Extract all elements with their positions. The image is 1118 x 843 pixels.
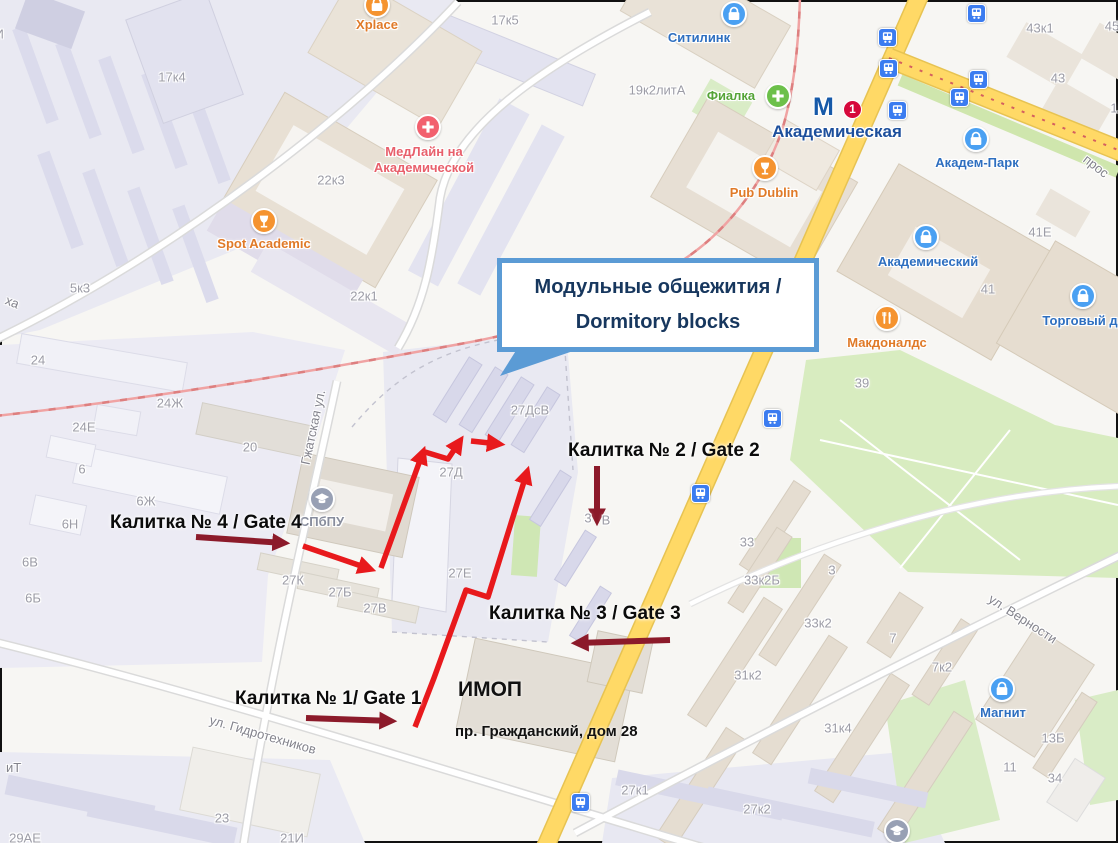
transit-stop-icon[interactable] <box>691 484 710 503</box>
poi-bag-icon[interactable] <box>1070 283 1096 309</box>
bag-glyph <box>915 226 937 248</box>
building-label: 33к2Б <box>744 573 780 588</box>
street-label: ул. Верности <box>986 591 1060 646</box>
building-label: 1 <box>1110 101 1117 116</box>
building-label: 29АЕ <box>9 831 41 843</box>
building-label: 24Е <box>72 420 95 435</box>
building-label: В <box>602 513 611 528</box>
building-label: 20 <box>243 440 257 455</box>
tram-glyph <box>572 794 589 811</box>
poi-grad-icon[interactable] <box>884 818 910 843</box>
building-label: 39 <box>855 376 869 391</box>
bag-glyph <box>723 3 745 25</box>
bag-glyph <box>1072 285 1094 307</box>
building-label: 6Ж <box>136 494 155 509</box>
tram-glyph <box>764 410 781 427</box>
poi-label[interactable]: Ситилинк <box>668 30 730 46</box>
tram-glyph <box>951 89 968 106</box>
cross-glyph <box>417 116 439 138</box>
bag-glyph <box>965 128 987 150</box>
building-label: 27ДсВ <box>511 403 549 418</box>
poi-grad-icon[interactable] <box>309 486 335 512</box>
building-label: 6Б <box>25 591 41 606</box>
street-label: ха <box>3 293 21 312</box>
poi-label[interactable]: МедЛайн наАкадемической <box>374 144 474 176</box>
building-label: 41Е <box>1028 225 1051 240</box>
transit-stop-icon[interactable] <box>888 101 907 120</box>
building-label: 33 <box>740 535 754 550</box>
poi-goblet-icon[interactable] <box>752 155 778 181</box>
bag-glyph <box>366 0 388 16</box>
poi-bag-icon[interactable] <box>989 676 1015 702</box>
goblet-glyph <box>754 157 776 179</box>
building-label: 43 <box>1051 71 1065 86</box>
transit-stop-icon[interactable] <box>950 88 969 107</box>
building-label: 34 <box>1048 771 1062 786</box>
poi-label[interactable]: Академический <box>878 254 978 270</box>
transit-stop-icon[interactable] <box>571 793 590 812</box>
building-label: 23 <box>215 811 229 826</box>
poi-label[interactable]: СПбПУ <box>300 514 344 530</box>
grad-glyph <box>311 488 333 510</box>
poi-label[interactable]: Xplace <box>356 17 398 33</box>
poi-label[interactable]: Макдоналдс <box>847 335 927 351</box>
poi-label[interactable]: Фиалка <box>707 88 755 104</box>
building-label: 27к1 <box>621 783 648 798</box>
poi-cross-icon[interactable] <box>415 114 441 140</box>
map-canvas[interactable]: М 1 Академическая 17И17к417к522к322к15к3… <box>0 0 1118 843</box>
metro-line-badge: 1 <box>843 100 862 119</box>
label-layer: М 1 Академическая 17И17к417к522к322к15к3… <box>0 0 1118 843</box>
dormitory-callout: Модульные общежития / Dormitory blocks <box>497 258 819 352</box>
building-label: 27К <box>282 573 304 588</box>
poi-label[interactable]: Pub Dublin <box>730 185 799 201</box>
bag-glyph <box>991 678 1013 700</box>
building-label: 19к2литА <box>629 83 686 98</box>
building-label: 13Б <box>1042 731 1065 746</box>
transit-stop-icon[interactable] <box>763 409 782 428</box>
building-label: 24Ж <box>157 396 183 411</box>
callout-line-2: Dormitory blocks <box>576 311 740 334</box>
street-label: Гжатская ул. <box>298 388 329 466</box>
callout-line-1: Модульные общежития / <box>535 276 782 299</box>
fork-glyph <box>876 307 898 329</box>
tram-glyph <box>889 102 906 119</box>
building-label: 6В <box>22 555 38 570</box>
poi-label[interactable]: Академ-Парк <box>935 155 1018 171</box>
metro-station-label[interactable]: Академическая <box>772 122 902 142</box>
poi-label[interactable]: Spot Academic <box>217 236 310 252</box>
building-label: 3 <box>584 511 591 526</box>
building-label: 11 <box>1003 760 1017 775</box>
building-label: 27к2 <box>743 802 770 817</box>
building-label: 17к5 <box>491 13 518 28</box>
metro-logo-icon[interactable]: М <box>813 94 834 120</box>
building-label: 22к1 <box>350 289 377 304</box>
poi-fork-icon[interactable] <box>874 305 900 331</box>
building-label: 22к3 <box>317 173 344 188</box>
building-label: 33к2 <box>804 616 831 631</box>
building-label: 41 <box>981 282 995 297</box>
building-label: 43к1 <box>1026 21 1053 36</box>
building-label: 31к4 <box>824 721 851 736</box>
building-label: 17И <box>0 27 4 42</box>
tram-glyph <box>968 5 985 22</box>
street-label: иТ <box>6 760 21 775</box>
building-label: 27Е <box>448 566 471 581</box>
cross-glyph <box>767 85 789 107</box>
tram-glyph <box>692 485 709 502</box>
tram-glyph <box>970 71 987 88</box>
transit-stop-icon[interactable] <box>969 70 988 89</box>
street-label: ул. Гидротехников <box>208 712 318 757</box>
transit-stop-icon[interactable] <box>967 4 986 23</box>
building-label: 27В <box>363 601 386 616</box>
transit-stop-icon[interactable] <box>879 59 898 78</box>
building-label: 27Д <box>439 465 462 480</box>
building-label: 3 <box>828 563 835 578</box>
poi-goblet-icon[interactable] <box>251 208 277 234</box>
building-label: 17к4 <box>158 70 185 85</box>
poi-label[interactable]: Торговый д <box>1042 313 1117 329</box>
poi-bag-icon[interactable] <box>963 126 989 152</box>
transit-stop-icon[interactable] <box>878 28 897 47</box>
building-label: 21И <box>280 831 304 843</box>
building-label: 31к2 <box>734 668 761 683</box>
goblet-glyph <box>253 210 275 232</box>
poi-cross-icon[interactable] <box>765 83 791 109</box>
building-label: 6 <box>78 462 85 477</box>
building-label: 7 <box>889 631 896 646</box>
building-label: 24 <box>31 353 45 368</box>
poi-bag-icon[interactable] <box>364 0 390 18</box>
poi-bag-icon[interactable] <box>913 224 939 250</box>
grad-glyph <box>886 820 908 842</box>
poi-bag-icon[interactable] <box>721 1 747 27</box>
street-label: прос <box>1080 152 1111 181</box>
building-label: 45 <box>1105 19 1118 34</box>
building-label: 6Н <box>62 517 79 532</box>
tram-glyph <box>879 29 896 46</box>
tram-glyph <box>880 60 897 77</box>
building-label: 27Б <box>329 585 352 600</box>
poi-label[interactable]: Магнит <box>980 705 1026 721</box>
building-label: 5к3 <box>70 281 90 296</box>
building-label: 7к2 <box>932 660 952 675</box>
